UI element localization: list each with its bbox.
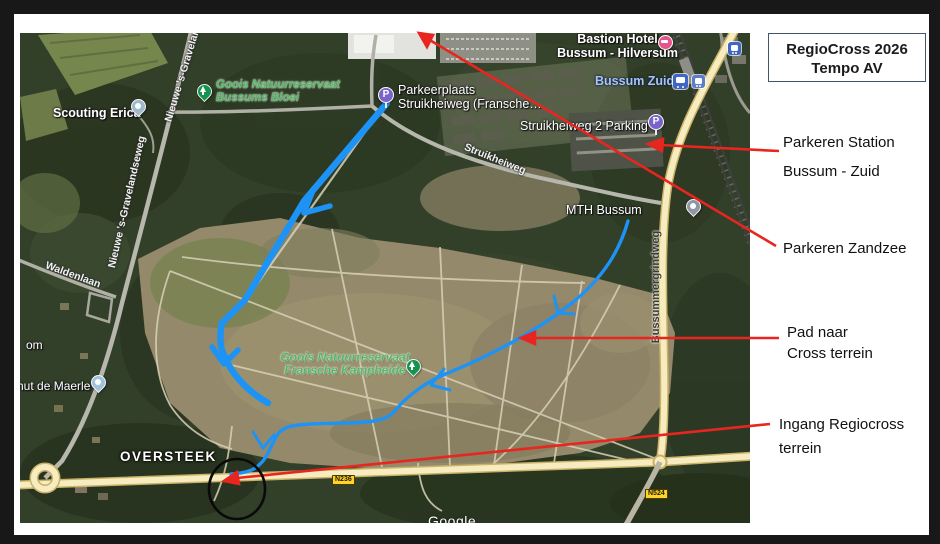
label-bussum-zuid: Bussum Zuid xyxy=(595,74,674,88)
label-goois-bussums: Goois Natuurreservaat Bussums Bloei xyxy=(216,79,340,105)
label-scouting-erica: Scouting Erica xyxy=(53,106,141,120)
label-goois-bussums-line2: Bussums Bloei xyxy=(216,92,340,105)
note-line: Parkeren Station xyxy=(783,128,895,157)
tree-glyph xyxy=(409,361,415,367)
note-line: Cross terrein xyxy=(787,343,873,364)
train-station-icon[interactable] xyxy=(673,74,688,89)
label-goois-fransche-line2: Fransche Kampheide xyxy=(265,364,425,377)
road-shield-n236: N236 xyxy=(332,475,355,485)
note-parkeren-station: Parkeren Station Bussum - Zuid xyxy=(783,128,895,186)
train-glyph xyxy=(731,45,738,51)
label-parkeerplaats-line1: Parkeerplaats xyxy=(398,83,542,97)
label-goois-fransche: Goois Natuurreservaat Fransche Kampheide xyxy=(265,351,425,377)
pin-stem xyxy=(655,129,657,135)
note-line: Pad naar xyxy=(787,322,873,343)
title-box: RegioCross 2026 Tempo AV xyxy=(768,33,926,82)
wheel-dot xyxy=(696,85,698,87)
poi-pin-mth-bussum[interactable] xyxy=(685,199,701,221)
slide: Scouting Erica Goois Natuurreservaat Bus… xyxy=(14,14,929,535)
poi-glyph xyxy=(135,103,141,109)
train-glyph xyxy=(676,77,685,83)
label-hut-de-maerle: hut de Maerle xyxy=(20,379,90,393)
tree-glyph xyxy=(200,86,206,92)
poi-glyph xyxy=(95,379,101,385)
parking-pin-parkeerplaats[interactable]: P xyxy=(378,87,394,109)
satellite-map[interactable]: Scouting Erica Goois Natuurreservaat Bus… xyxy=(20,33,750,523)
road-shield-n524: N524 xyxy=(645,489,668,499)
transit-icon-ne[interactable] xyxy=(728,42,741,55)
note-line: terrein xyxy=(779,437,904,461)
wheel-dot xyxy=(732,52,734,54)
poi-pin-scouting-erica[interactable] xyxy=(130,99,146,121)
slide-frame: Scouting Erica Goois Natuurreservaat Bus… xyxy=(0,0,940,544)
wheel-dot xyxy=(699,85,701,87)
note-parkeren-zandzee: Parkeren Zandzee xyxy=(783,240,906,257)
parking-pin-struikheiweg2[interactable]: P xyxy=(648,114,664,136)
parking-icon: P xyxy=(648,114,664,130)
label-mth-bussum: MTH Bussum xyxy=(566,203,642,217)
label-goois-bussums-line1: Goois Natuurreservaat xyxy=(216,79,340,92)
note-line: Ingang Regiocross xyxy=(779,413,904,437)
title-line-2: Tempo AV xyxy=(769,59,925,78)
note-pad-naar-cross: Pad naar Cross terrein xyxy=(787,322,873,364)
pin-stem xyxy=(385,102,387,108)
nature-reserve-pin-fransche[interactable] xyxy=(405,359,421,381)
label-parkeerplaats: Parkeerplaats Struikheiweg (Fransche… xyxy=(398,83,542,111)
nature-reserve-pin-bussums[interactable] xyxy=(196,84,212,106)
note-ingang-regiocross: Ingang Regiocross terrein xyxy=(779,413,904,461)
bus-glyph xyxy=(695,78,702,84)
label-parkeerplaats-line2: Struikheiweg (Fransche… xyxy=(398,97,542,111)
poi-pin-hut-de-maerle[interactable] xyxy=(90,375,106,397)
parking-icon: P xyxy=(378,87,394,103)
note-line: Bussum - Zuid xyxy=(783,157,895,186)
pin-stem xyxy=(664,49,666,54)
hotel-pin-bastion[interactable] xyxy=(658,35,674,55)
wheel-dot xyxy=(677,86,679,88)
title-line-1: RegioCross 2026 xyxy=(769,40,925,59)
label-struikheiweg2-parking: Struikheiweg 2 Parking xyxy=(520,119,648,133)
wheel-dot xyxy=(735,52,737,54)
wheel-dot xyxy=(682,86,684,88)
poi-glyph xyxy=(690,203,696,209)
note-line: Parkeren Zandzee xyxy=(783,240,906,257)
oversteek-note: OVERSTEEK xyxy=(120,449,217,464)
roadlabel-bussummergrindweg: Bussummergrindweg xyxy=(650,217,662,357)
label-om: om xyxy=(26,338,43,352)
bus-stop-icon[interactable] xyxy=(692,75,705,88)
google-watermark: Google xyxy=(428,513,476,523)
bed-glyph xyxy=(661,40,668,43)
